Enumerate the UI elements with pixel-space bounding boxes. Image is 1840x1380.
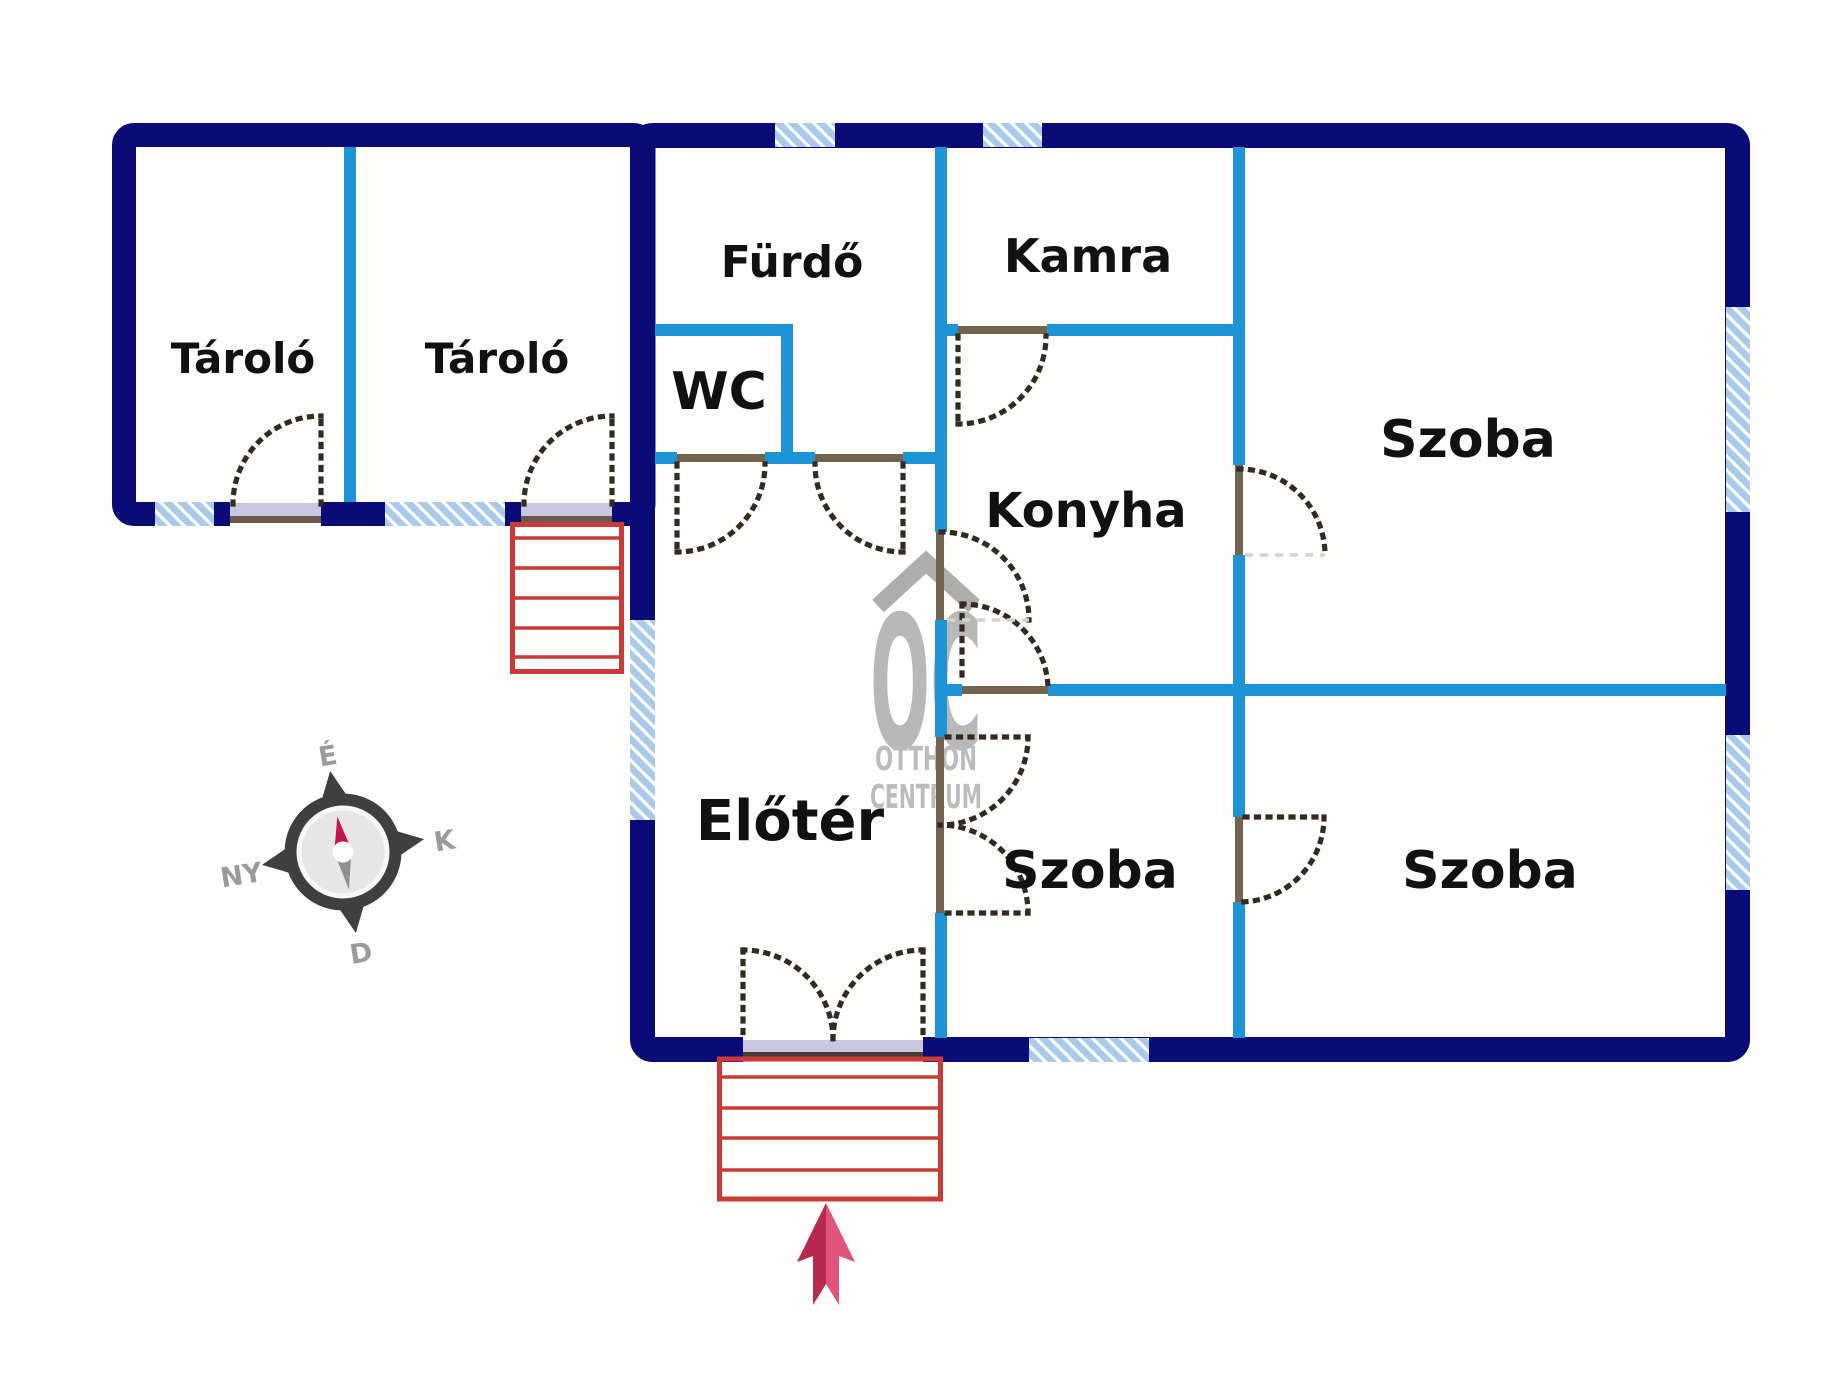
room-label-wc: WC: [671, 362, 767, 422]
partition-eloter-top-a: [655, 452, 677, 464]
outer-wall-storage-wing: [124, 135, 644, 514]
room-label-szoba-bottom-right: Szoba: [1402, 841, 1578, 901]
room-label-furdo: Fürdő: [721, 237, 864, 288]
room-label-kamra: Kamra: [1004, 229, 1172, 283]
room-label-eloter: Előtér: [696, 789, 885, 854]
room-label-tarolo2: Tároló: [425, 334, 569, 383]
partition-szoba-left-a: [1233, 147, 1245, 465]
door-arc-szoba-szoba: [1239, 817, 1324, 902]
compass-label-west: NY: [218, 857, 265, 894]
door-arc-entrance-left: [743, 950, 833, 1040]
floor-plan-canvas: OC OTTHON CENTRUM: [0, 0, 1840, 1380]
door-arc-wc: [677, 464, 765, 552]
partition-wc-top: [655, 324, 793, 336]
watermark-line2: CENTRUM: [870, 777, 982, 816]
partition-eloter-szoba: [935, 913, 947, 1038]
door-arc-furdo: [815, 464, 903, 552]
window-right-szoba-top: [1726, 307, 1750, 512]
room-label-szoba-top-right: Szoba: [1380, 410, 1556, 470]
partition-furdo-kamra: [935, 147, 947, 532]
room-label-tarolo1: Tároló: [171, 334, 315, 383]
window-top-furdo: [775, 123, 835, 147]
stairs-side: [513, 525, 622, 672]
sill-szoba-bottom-door: [1235, 817, 1243, 902]
floor-plan-page: OC OTTHON CENTRUM: [0, 0, 1840, 1380]
compass: É K D NY: [202, 723, 474, 989]
sill-szoba-top-door: [1235, 465, 1243, 555]
window-bottom-tarolo1: [155, 502, 214, 526]
door-arc-kamra: [958, 336, 1046, 424]
entrance-arrow-icon: [797, 1203, 855, 1305]
partition-middle-horizontal-a: [947, 684, 962, 696]
partition-middle-horizontal-b: [1048, 684, 1726, 696]
door-arc-tarolo2: [524, 416, 612, 504]
door-arc-entrance-right: [833, 950, 923, 1040]
compass-label-east: K: [432, 824, 459, 858]
door-threshold-tarolo1: [230, 499, 321, 528]
partition-tarolo-divider: [344, 147, 356, 502]
partition-kamra-bottom-b: [1047, 324, 1233, 336]
window-bottom-tarolo2: [385, 502, 505, 526]
sill-wc-door: [677, 454, 765, 462]
window-left-eloter: [630, 620, 655, 820]
room-label-konyha: Konyha: [985, 483, 1186, 539]
partition-eloter-top-b: [765, 452, 815, 464]
compass-label-south: D: [348, 937, 375, 971]
partition-szoba-left-c: [1233, 902, 1245, 1038]
partition-eloter-konyha: [935, 620, 947, 737]
door-arc-tarolo1: [233, 416, 321, 504]
window-right-szoba-bottom: [1726, 735, 1750, 890]
sill-konyha-door: [936, 532, 944, 620]
stairs-entrance: [720, 1059, 941, 1199]
watermark-line1: OTTHON: [875, 739, 977, 778]
sill-furdo-door: [815, 454, 903, 462]
partition-eloter-top-c: [903, 452, 947, 464]
sill-kamra-door: [958, 326, 1047, 334]
window-top-kamra: [983, 123, 1042, 147]
compass-label-north: É: [316, 739, 339, 773]
sill-konyha-szoba-door: [962, 686, 1048, 694]
door-guides: [947, 555, 1325, 620]
window-bottom-szoba: [1029, 1038, 1149, 1062]
partition-wc-right: [781, 324, 793, 464]
door-arc-szoba-top: [1239, 469, 1325, 555]
room-label-szoba-bottom-middle: Szoba: [1002, 841, 1178, 901]
